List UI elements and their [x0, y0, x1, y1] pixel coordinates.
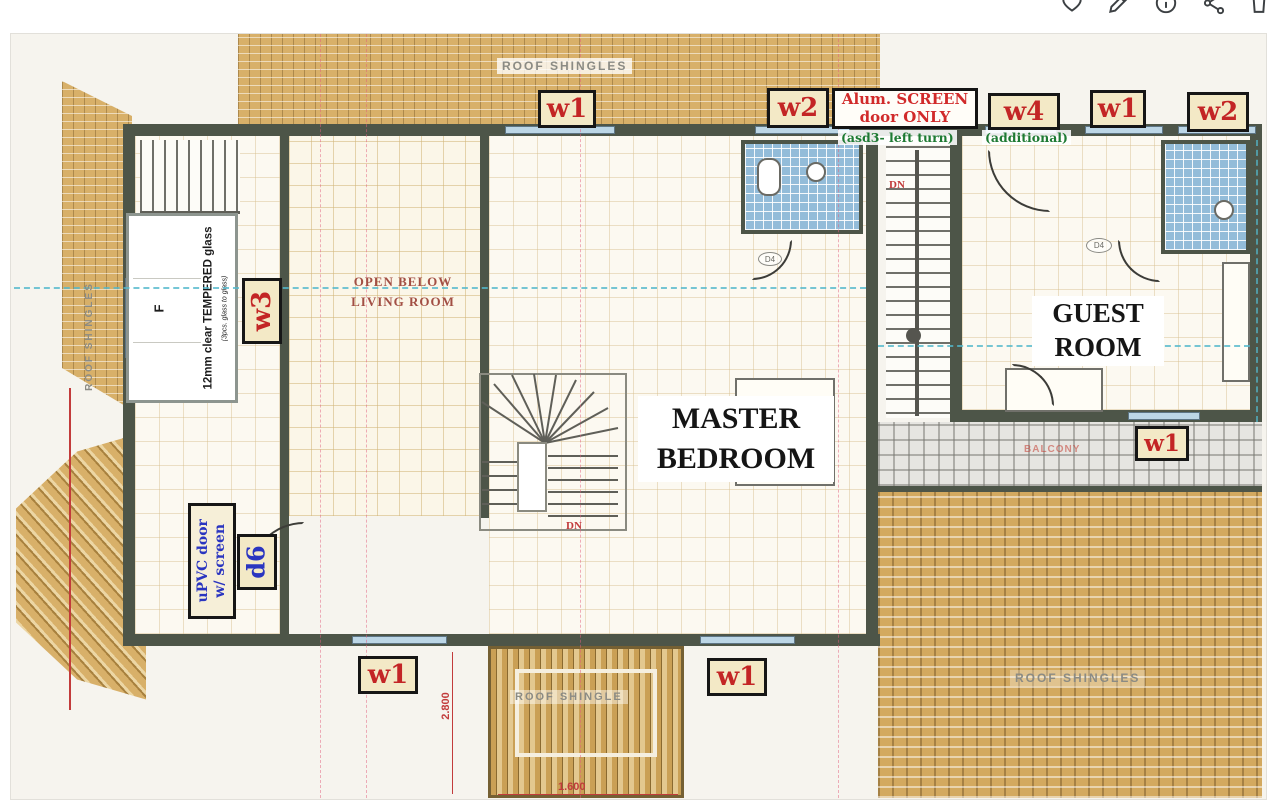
- share-icon[interactable]: [1201, 0, 1227, 16]
- upvc-text: uPVC doorw/ screen: [195, 519, 229, 602]
- dim-line-left: [69, 388, 71, 710]
- tag-w1-bottom-left: w1: [358, 656, 418, 694]
- dim-text-vertical: 2.800: [440, 692, 452, 720]
- master-bedroom-label: MASTER BEDROOM: [638, 396, 834, 482]
- gridline-vertical-1: [320, 34, 321, 798]
- tag-w2-top: w2: [767, 88, 829, 128]
- dormer-roof: [488, 646, 684, 798]
- glass-f-label: F: [139, 216, 179, 400]
- dim-text-horizontal: 1.600: [558, 781, 586, 793]
- asd3-note: (asd3- left turn): [838, 130, 957, 145]
- open-below-line1: OPEN BELOW: [348, 272, 458, 292]
- tag-w1-topright: w1: [1090, 90, 1146, 128]
- tempered-glass-panel: F 12mm clear TEMPERED glass (3pcs. glass…: [126, 213, 238, 403]
- additional-note: (additional): [982, 130, 1071, 145]
- glass-spec-sub-label: (3pcs. glass to glass): [219, 216, 231, 400]
- wall-guest-bottom: [956, 410, 1262, 422]
- wall-master-right: [866, 124, 878, 646]
- tag-w3-left: w3: [242, 278, 282, 344]
- roof-shingles-right-text: ROOF SHINGLES: [1010, 670, 1145, 686]
- guest-room-label: GUEST ROOM: [1032, 296, 1164, 366]
- info-icon[interactable]: [1153, 0, 1179, 16]
- tag-w1-deck: w1: [1135, 426, 1189, 461]
- tag-w1-top: w1: [538, 90, 596, 128]
- tag-w2-topright: w2: [1187, 92, 1249, 132]
- door-tag-d4-master: D4: [758, 252, 782, 266]
- door-tag-d4-guest: D4: [1086, 238, 1112, 253]
- right-stairwell-newel: [906, 328, 921, 343]
- guest-bathroom-tiles: [1161, 140, 1250, 254]
- master-line2: BEDROOM: [638, 439, 834, 480]
- tag-w1-bottom-mid: w1: [707, 658, 767, 696]
- roof-shingles-left-text: ROOF SHINGLES: [83, 277, 96, 396]
- dn-label-right-stair: DN: [889, 179, 905, 191]
- guest-counter: [1222, 262, 1250, 382]
- upper-landing-stair: [140, 140, 240, 214]
- gridline-vertical-4: [838, 34, 839, 798]
- guest-line2: ROOM: [1032, 331, 1164, 365]
- alum-line1: Alum. SCREEN: [842, 91, 968, 108]
- guest-line1: GUEST: [1032, 297, 1164, 331]
- alum-line2: door ONLY: [860, 109, 951, 126]
- right-stairwell-rail: [915, 150, 919, 416]
- upvc-door-note: uPVC doorw/ screen: [188, 503, 236, 619]
- central-winder-stair: [468, 372, 638, 534]
- tag-d6-left: d6: [237, 534, 277, 590]
- dim-line-dormer-v: [452, 652, 453, 794]
- open-below-line2: LIVING ROOM: [348, 292, 458, 312]
- open-below-floor: [289, 136, 480, 516]
- favorite-icon[interactable]: [1059, 0, 1085, 16]
- deck-railing: [878, 486, 1262, 492]
- delete-icon[interactable]: [1246, 0, 1272, 16]
- open-below-label: OPEN BELOW LIVING ROOM: [348, 272, 458, 311]
- dn-label-main-stair: DN: [566, 520, 582, 532]
- glass-spec-label: 12mm clear TEMPERED glass: [199, 216, 217, 400]
- gridline-vertical-3: [580, 34, 581, 798]
- wall-stairwell-right: [950, 124, 962, 422]
- roof-shingles-bottom-right: [878, 492, 1262, 798]
- window-glyph-bottom-w1b: [700, 636, 795, 644]
- centerline-vertical-right: [1256, 140, 1258, 422]
- master-line1: MASTER: [638, 399, 834, 440]
- guest-sink-fixture: [1214, 200, 1234, 220]
- balcony-label: BALCONY: [1024, 444, 1080, 455]
- roof-shingles-top-text: ROOF SHINGLES: [497, 58, 632, 74]
- toilet-fixture: [757, 158, 781, 196]
- tag-w4-top: w4: [988, 93, 1060, 130]
- sink-fixture: [806, 162, 826, 182]
- roof-shingle-dormer-text: ROOF SHINGLE: [510, 690, 628, 704]
- dormer-ridge: [515, 669, 657, 757]
- dim-line-dormer-h: [498, 794, 678, 795]
- edit-icon[interactable]: [1106, 0, 1132, 16]
- roof-shingles-left-strip: [62, 60, 132, 410]
- alum-screen-note: Alum. SCREEN door ONLY: [832, 88, 978, 129]
- window-glyph-deck-w1: [1128, 412, 1200, 420]
- viewer-toolbar: [0, 0, 1280, 33]
